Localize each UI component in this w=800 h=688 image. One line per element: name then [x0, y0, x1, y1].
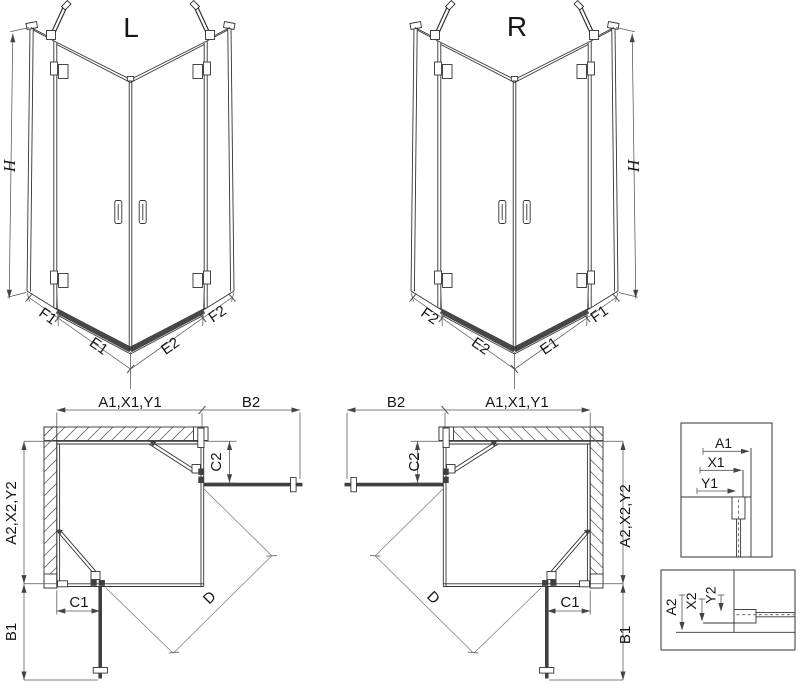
plan-view-left	[21, 406, 302, 680]
shower-enclosure-diagram: L R H H F1 E1 E2 F2 F2 E2 E1 F1 A1,X1,Y1…	[0, 0, 800, 688]
detail-label-x1: X1	[707, 454, 724, 470]
dim-label-a1x1y1-planR: A1,X1,Y1	[485, 394, 548, 411]
dim-label-b2-planR: B2	[387, 394, 405, 411]
dim-label-a1x1y1-planL: A1,X1,Y1	[98, 394, 161, 411]
labels-layer: L R H H F1 E1 E2 F2 F2 E2 E1 F1 A1,X1,Y1…	[0, 11, 732, 644]
dim-label-c1-planL: C1	[69, 594, 88, 611]
plan-view-right	[345, 406, 626, 680]
iso-view-left	[7, 1, 236, 390]
dim-label-d-planL: D	[200, 588, 220, 608]
geometry-layer	[7, 1, 795, 681]
dim-label-d-planR: D	[423, 588, 443, 608]
dim-label-f2-left: F2	[205, 302, 229, 326]
variant-label-right: R	[507, 11, 527, 42]
variant-label-left: L	[123, 12, 139, 43]
dim-label-height-right: H	[624, 158, 643, 173]
dim-label-c2-planL: C2	[208, 452, 225, 471]
diagram-canvas: L R H H F1 E1 E2 F2 F2 E2 E1 F1 A1,X1,Y1…	[0, 0, 800, 688]
detail-label-a1: A1	[715, 435, 732, 451]
detail-label-y2: Y2	[703, 586, 719, 603]
dim-label-a2x2y2-planL: A2,X2,Y2	[3, 481, 20, 544]
detail-label-y1: Y1	[701, 475, 718, 491]
dim-label-b1-planR: B1	[617, 626, 634, 644]
dim-label-a2x2y2-planR: A2,X2,Y2	[617, 484, 634, 547]
dim-label-c1-planR: C1	[560, 594, 579, 611]
dim-label-height-left: H	[0, 158, 19, 173]
detail-label-x2: X2	[683, 592, 699, 609]
dim-label-b2-planL: B2	[242, 394, 260, 411]
dim-label-b1-planL: B1	[3, 623, 20, 641]
dim-label-c2-planR: C2	[406, 452, 423, 471]
detail-label-a2: A2	[663, 598, 679, 615]
iso-view-right	[410, 1, 639, 390]
detail-box-bottom	[661, 570, 795, 650]
